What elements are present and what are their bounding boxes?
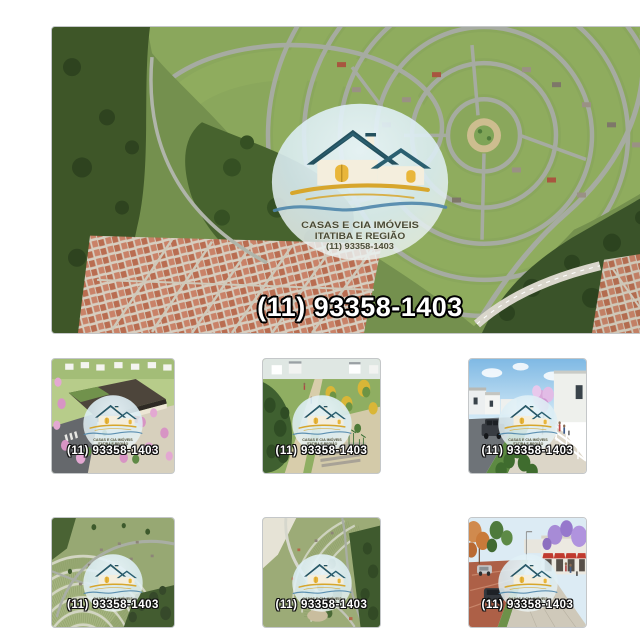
phone-overlay: (11) 93358-1403 [263,599,380,611]
phone-overlay: (11) 93358-1403 [52,445,174,457]
thumbnail-grid: CASAS E CIA IMÓVEIS ITATIBA E REGIÃO (11… [11,342,629,640]
central-park-circle [467,118,501,152]
photo-lots-masterplan-2: CASAS E CIA IMÓVEIS ITATIBA E REGIÃO (11… [262,517,381,628]
photo-commercial-center: CASAS E CIA IMÓVEIS ITATIBA E REGIÃO (11… [51,358,175,474]
photo-aerial-masterplan: CASAS E CIA IMÓVEIS ITATIBA E REGIÃO (11… [51,26,640,334]
photo-shops-street: CASAS E CIA IMÓVEIS ITATIBA E REGIÃO (11… [468,517,587,628]
photo-park-fitness: CASAS E CIA IMÓVEIS ITATIBA E REGIÃO (11… [262,358,381,474]
phone-overlay: (11) 93358-1403 [469,445,586,457]
phone-overlay: (11) 93358-1403 [263,445,380,457]
phone-overlay: (11) 93358-1403 [469,599,586,611]
dirt-patch [307,609,328,621]
photo-collage-page: CASAS E CIA IMÓVEIS ITATIBA E REGIÃO (11… [0,0,640,640]
phone-overlay: (11) 93358-1403 [52,292,640,323]
aerial-masterplan-illustration [52,27,640,333]
phone-overlay: (11) 93358-1403 [52,599,174,611]
photo-street-houses: CASAS E CIA IMÓVEIS ITATIBA E REGIÃO (11… [468,358,587,474]
photo-lots-masterplan-1: CASAS E CIA IMÓVEIS ITATIBA E REGIÃO (11… [51,517,175,628]
